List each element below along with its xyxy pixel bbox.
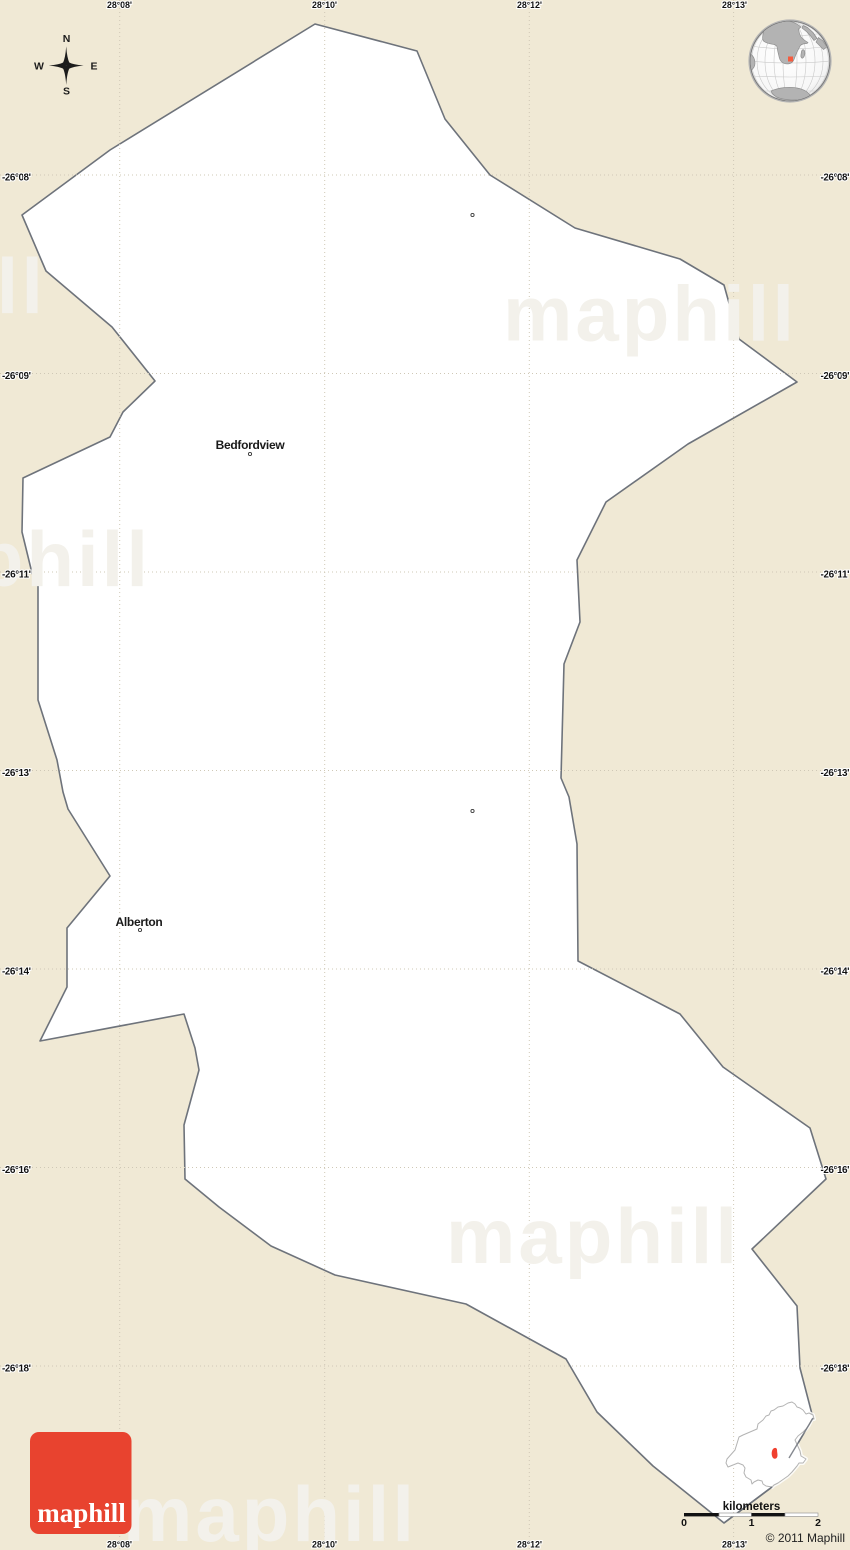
svg-text:-26°13': -26°13' [2, 768, 31, 779]
svg-text:S: S [63, 86, 70, 98]
svg-text:-26°11': -26°11' [821, 569, 850, 580]
svg-text:maphill: maphill [37, 1498, 126, 1528]
svg-text:28°10': 28°10' [312, 1540, 337, 1550]
svg-text:E: E [90, 60, 97, 72]
svg-text:1: 1 [749, 1517, 755, 1529]
svg-text:2: 2 [815, 1517, 821, 1529]
svg-text:28°08': 28°08' [107, 0, 132, 10]
svg-text:maphill: maphill [0, 515, 151, 603]
svg-text:-26°08': -26°08' [821, 172, 850, 183]
svg-text:-26°14': -26°14' [2, 966, 31, 977]
svg-text:28°10': 28°10' [312, 0, 337, 10]
svg-text:28°12': 28°12' [517, 1540, 542, 1550]
svg-text:28°12': 28°12' [517, 0, 542, 10]
svg-text:maphill: maphill [123, 1470, 417, 1550]
svg-text:-26°18': -26°18' [821, 1363, 850, 1374]
svg-text:-26°16': -26°16' [821, 1165, 850, 1176]
svg-text:28°08': 28°08' [107, 1540, 132, 1550]
svg-text:Alberton: Alberton [116, 915, 163, 929]
svg-text:W: W [34, 60, 44, 72]
svg-text:-26°14': -26°14' [821, 966, 850, 977]
svg-text:-26°18': -26°18' [2, 1363, 31, 1374]
svg-text:-26°09': -26°09' [2, 371, 31, 382]
svg-text:© 2011 Maphill: © 2011 Maphill [766, 1531, 845, 1545]
svg-text:28°13': 28°13' [722, 0, 747, 10]
svg-text:-26°08': -26°08' [2, 172, 31, 183]
svg-text:maphill: maphill [503, 270, 797, 358]
svg-text:N: N [63, 33, 71, 45]
svg-text:-26°09': -26°09' [821, 371, 850, 382]
svg-text:maphill: maphill [446, 1192, 740, 1280]
svg-text:-26°16': -26°16' [2, 1165, 31, 1176]
svg-text:-26°13': -26°13' [821, 768, 850, 779]
svg-text:0: 0 [681, 1517, 687, 1529]
svg-text:maphill: maphill [0, 242, 46, 330]
svg-text:28°13': 28°13' [722, 1540, 747, 1550]
svg-text:-26°11': -26°11' [2, 569, 31, 580]
svg-text:Bedfordview: Bedfordview [216, 438, 286, 452]
svg-text:kilometers: kilometers [723, 1501, 781, 1513]
